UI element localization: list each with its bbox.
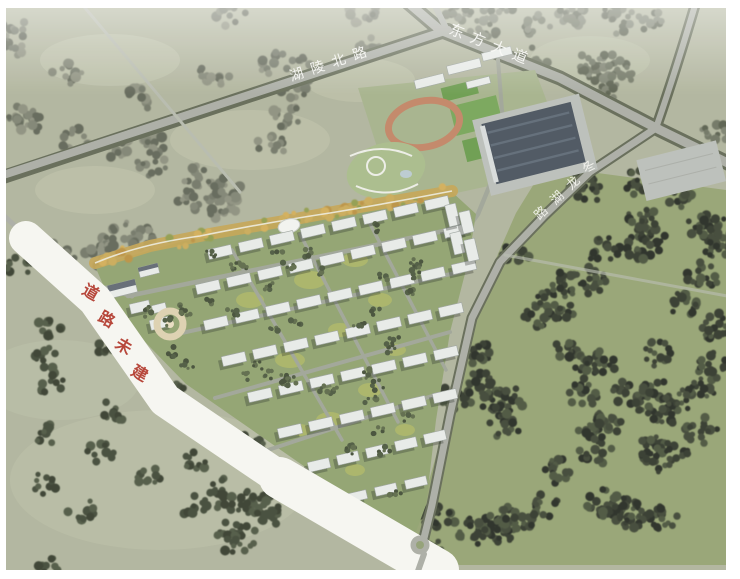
masterplan-aerial-rendering: 湖陵北路 东方大道 冬龙湖路 道路未建 — [0, 0, 740, 579]
pond — [400, 170, 412, 178]
rendering-scene: 湖陵北路 东方大道 冬龙湖路 道路未建 — [0, 0, 740, 579]
page-margin-top — [0, 0, 740, 8]
page-margin-left — [0, 0, 6, 579]
page-margin-bottom — [0, 570, 740, 579]
page-margin-right — [726, 0, 740, 579]
